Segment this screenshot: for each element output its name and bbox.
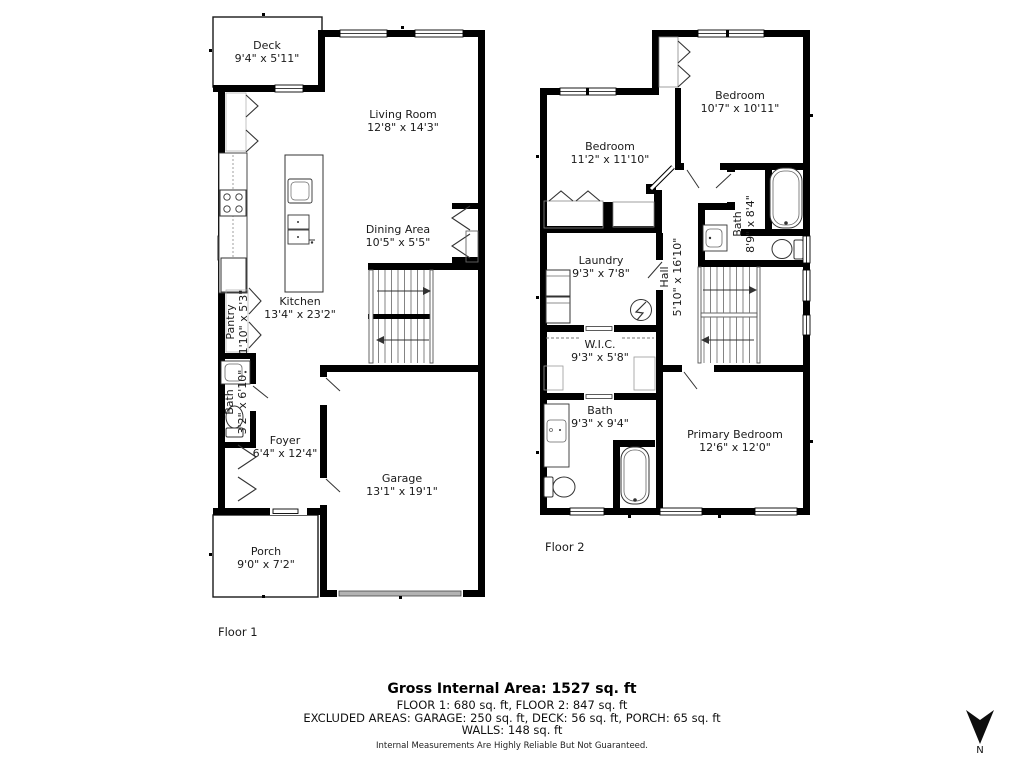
bathtub-icon — [770, 168, 802, 228]
floor2-label: Floor 2 — [545, 540, 585, 554]
room-dims: 9'0" x 7'2" — [237, 558, 295, 571]
room-dims: 10'5" x 5'5" — [366, 236, 431, 249]
room-dims: 13'1" x 19'1" — [366, 485, 438, 498]
room-name: Bath — [571, 404, 629, 417]
room-name: Pantry — [224, 290, 237, 355]
room-label-bath1: Bath 3'2" x 6'10" — [223, 370, 249, 435]
room-name: Hall — [658, 238, 671, 317]
floor1-walls — [213, 30, 485, 597]
room-dims: 8'9" x 8'4" — [744, 195, 757, 253]
washer-icon — [546, 270, 570, 296]
room-dims: 13'4" x 23'2" — [264, 308, 336, 321]
room-dims: 9'3" x 9'4" — [571, 417, 629, 430]
room-dims: 9'3" x 5'8" — [571, 351, 629, 364]
room-label-dining-area: Dining Area 10'5" x 5'5" — [366, 223, 431, 249]
room-label-laundry: Laundry 9'3" x 7'8" — [572, 254, 630, 280]
floor1-label: Floor 1 — [218, 625, 258, 639]
room-name: Foyer — [253, 434, 318, 447]
room-label-wic: W.I.C. 9'3" x 5'8" — [571, 338, 629, 364]
room-label-deck: Deck 9'4" x 5'11" — [235, 39, 300, 65]
island-icon — [285, 155, 323, 292]
room-label-bath-top: Bath 8'9" x 8'4" — [731, 195, 757, 253]
room-name: Bath — [223, 370, 236, 435]
room-label-living-room: Living Room 12'8" x 14'3" — [367, 108, 439, 134]
room-dims: 9'4" x 5'11" — [235, 52, 300, 65]
toilet-icon — [544, 477, 575, 497]
room-dims: 6'4" x 12'4" — [253, 447, 318, 460]
room-name: Living Room — [367, 108, 439, 121]
room-dims: 11'2" x 11'10" — [571, 153, 650, 166]
water-heater-icon — [631, 300, 652, 321]
room-name: Bedroom — [701, 89, 780, 102]
room-name: Porch — [237, 545, 295, 558]
room-dims: 9'3" x 7'8" — [572, 267, 630, 280]
room-label-primary-bedroom: Primary Bedroom 12'6" x 12'0" — [687, 428, 783, 454]
floor2-stairs — [698, 267, 760, 363]
room-dims: 1'10" x 5'3" — [237, 290, 250, 355]
room-dims: 12'8" x 14'3" — [367, 121, 439, 134]
room-name: Kitchen — [264, 295, 336, 308]
room-dims: 5'10" x 16'10" — [671, 238, 684, 317]
toilet-icon — [772, 240, 803, 260]
room-name: Garage — [366, 472, 438, 485]
room-name: Primary Bedroom — [687, 428, 783, 441]
room-name: W.I.C. — [571, 338, 629, 351]
room-name: Laundry — [572, 254, 630, 267]
floorplan-page: Deck 9'4" x 5'11" Living Room 12'8" x 14… — [0, 0, 1024, 768]
room-label-pantry: Pantry 1'10" x 5'3" — [224, 290, 250, 355]
room-label-porch: Porch 9'0" x 7'2" — [237, 545, 295, 571]
kitchen-fixtures — [219, 153, 323, 293]
room-name: Dining Area — [366, 223, 431, 236]
room-name: Bedroom — [571, 140, 650, 153]
room-dims: 12'6" x 12'0" — [687, 441, 783, 454]
room-label-kitchen: Kitchen 13'4" x 23'2" — [264, 295, 336, 321]
room-dims: 10'7" x 10'11" — [701, 102, 780, 115]
vanity-icon — [544, 404, 569, 467]
walls-area-line: WALLS: 148 sq. ft — [0, 723, 1024, 737]
dryer-icon — [546, 297, 570, 323]
floorplan-canvas — [0, 0, 1024, 768]
disclaimer-text: Internal Measurements Are Highly Reliabl… — [0, 741, 1024, 751]
stove-icon — [220, 190, 246, 216]
fridge-icon — [221, 258, 246, 292]
room-label-bath-bottom: Bath 9'3" x 9'4" — [571, 404, 629, 430]
room-label-bedroom-left: Bedroom 11'2" x 11'10" — [571, 140, 650, 166]
room-label-garage: Garage 13'1" x 19'1" — [366, 472, 438, 498]
room-name: Bath — [731, 195, 744, 253]
room-label-hall: Hall 5'10" x 16'10" — [658, 238, 684, 317]
floor2-closets — [544, 37, 690, 228]
room-dims: 3'2" x 6'10" — [236, 370, 249, 435]
floor1-plan — [209, 13, 485, 599]
bathtub-icon — [621, 447, 649, 504]
room-label-bedroom-right: Bedroom 10'7" x 10'11" — [701, 89, 780, 115]
room-name: Deck — [235, 39, 300, 52]
sink-icon — [703, 225, 727, 251]
room-label-foyer: Foyer 6'4" x 12'4" — [253, 434, 318, 460]
gross-area-title: Gross Internal Area: 1527 sq. ft — [0, 681, 1024, 697]
north-label: N — [976, 745, 983, 756]
